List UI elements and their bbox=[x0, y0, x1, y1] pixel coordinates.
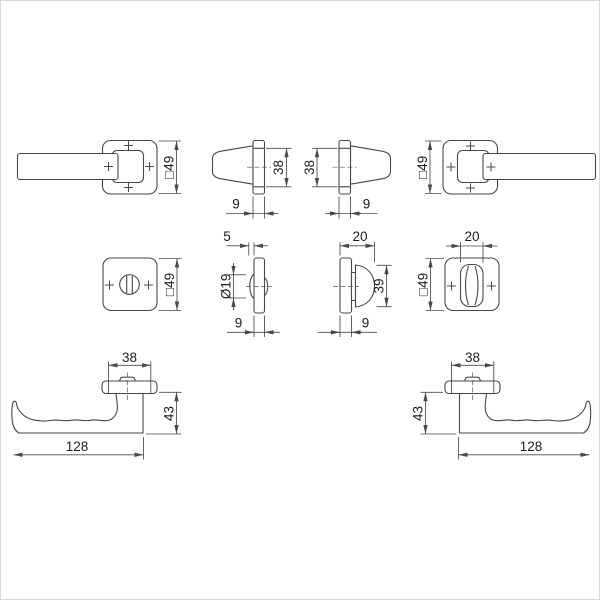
drawing-svg: □49 38 9 38 9 bbox=[0, 0, 600, 600]
dim-lever-right-43: 43 bbox=[411, 392, 457, 434]
emergency-release-disc bbox=[120, 275, 140, 295]
view-rose-thumbturn-front bbox=[445, 258, 499, 311]
view-lever-side-left bbox=[12, 373, 157, 434]
dim-label-20: 20 bbox=[464, 229, 479, 244]
dim-label-39: 39 bbox=[372, 278, 387, 293]
dim-label-9: 9 bbox=[232, 197, 240, 212]
rose-edge-bar bbox=[102, 381, 157, 394]
dim-emergency-9: 9 bbox=[227, 315, 280, 337]
handle-neck-profile bbox=[213, 146, 254, 184]
dim-label-square49: □49 bbox=[162, 273, 177, 296]
lever-handle-profile bbox=[12, 394, 143, 434]
dim-thumbturn-9: 9 bbox=[318, 315, 378, 337]
view-front-handle-right bbox=[443, 141, 596, 195]
dim-side-right-9: 9 bbox=[325, 197, 378, 219]
dim-label-38: 38 bbox=[465, 350, 480, 365]
dim-emergency-5: 5 bbox=[223, 229, 268, 256]
dim-label-9: 9 bbox=[363, 197, 371, 212]
rose-profile bbox=[340, 258, 352, 313]
dim-label-38: 38 bbox=[122, 350, 137, 365]
dim-side-left-38: 38 bbox=[266, 148, 292, 187]
dim-label-20: 20 bbox=[352, 229, 367, 244]
dim-label-128: 128 bbox=[520, 439, 543, 454]
lever-grip bbox=[483, 154, 596, 180]
dim-rose-emergency-square49: □49 bbox=[159, 259, 182, 311]
dim-lever-right-128: 128 bbox=[459, 437, 590, 460]
dim-label-diameter19: Ø19 bbox=[219, 274, 234, 300]
lever-grip bbox=[18, 154, 119, 180]
dim-label-square49: □49 bbox=[162, 156, 177, 179]
page-border bbox=[1, 1, 600, 600]
view-front-handle-left bbox=[18, 141, 158, 195]
dim-label-5: 5 bbox=[223, 229, 231, 244]
dim-front-right-square49: □49 bbox=[415, 141, 442, 194]
view-rose-emergency-profile bbox=[246, 258, 272, 313]
dim-rose-thumbturn-square49: □49 bbox=[416, 259, 445, 311]
view-rose-thumbturn-profile bbox=[333, 258, 375, 313]
view-side-handle-left bbox=[213, 141, 272, 195]
thumbturn-knob bbox=[461, 265, 484, 307]
dim-label-38: 38 bbox=[271, 160, 286, 175]
dim-front-left-square49: □49 bbox=[159, 141, 182, 194]
dim-emergency-diameter19: Ø19 bbox=[219, 263, 247, 310]
dim-label-43: 43 bbox=[411, 406, 426, 421]
dim-label-9: 9 bbox=[362, 315, 370, 330]
dim-label-square49: □49 bbox=[416, 273, 431, 296]
dim-thumbturn-39: 39 bbox=[372, 265, 392, 306]
dim-lever-left-128: 128 bbox=[14, 437, 144, 460]
dim-label-43: 43 bbox=[162, 406, 177, 421]
view-rose-emergency-front bbox=[103, 258, 157, 311]
dim-label-38: 38 bbox=[302, 160, 317, 175]
technical-drawing-page: □49 38 9 38 9 bbox=[0, 0, 600, 600]
dim-label-square49: □49 bbox=[415, 156, 430, 179]
dim-label-128: 128 bbox=[66, 439, 89, 454]
dim-side-left-9: 9 bbox=[226, 197, 279, 219]
view-lever-side-right bbox=[445, 373, 591, 434]
view-side-handle-right bbox=[333, 141, 391, 195]
handle-neck-profile bbox=[351, 146, 391, 184]
dim-lever-left-43: 43 bbox=[146, 392, 182, 434]
dim-side-right-38: 38 bbox=[302, 148, 338, 187]
rose-profile bbox=[254, 258, 265, 313]
lever-handle-profile bbox=[460, 394, 591, 434]
dim-label-9: 9 bbox=[235, 315, 243, 330]
